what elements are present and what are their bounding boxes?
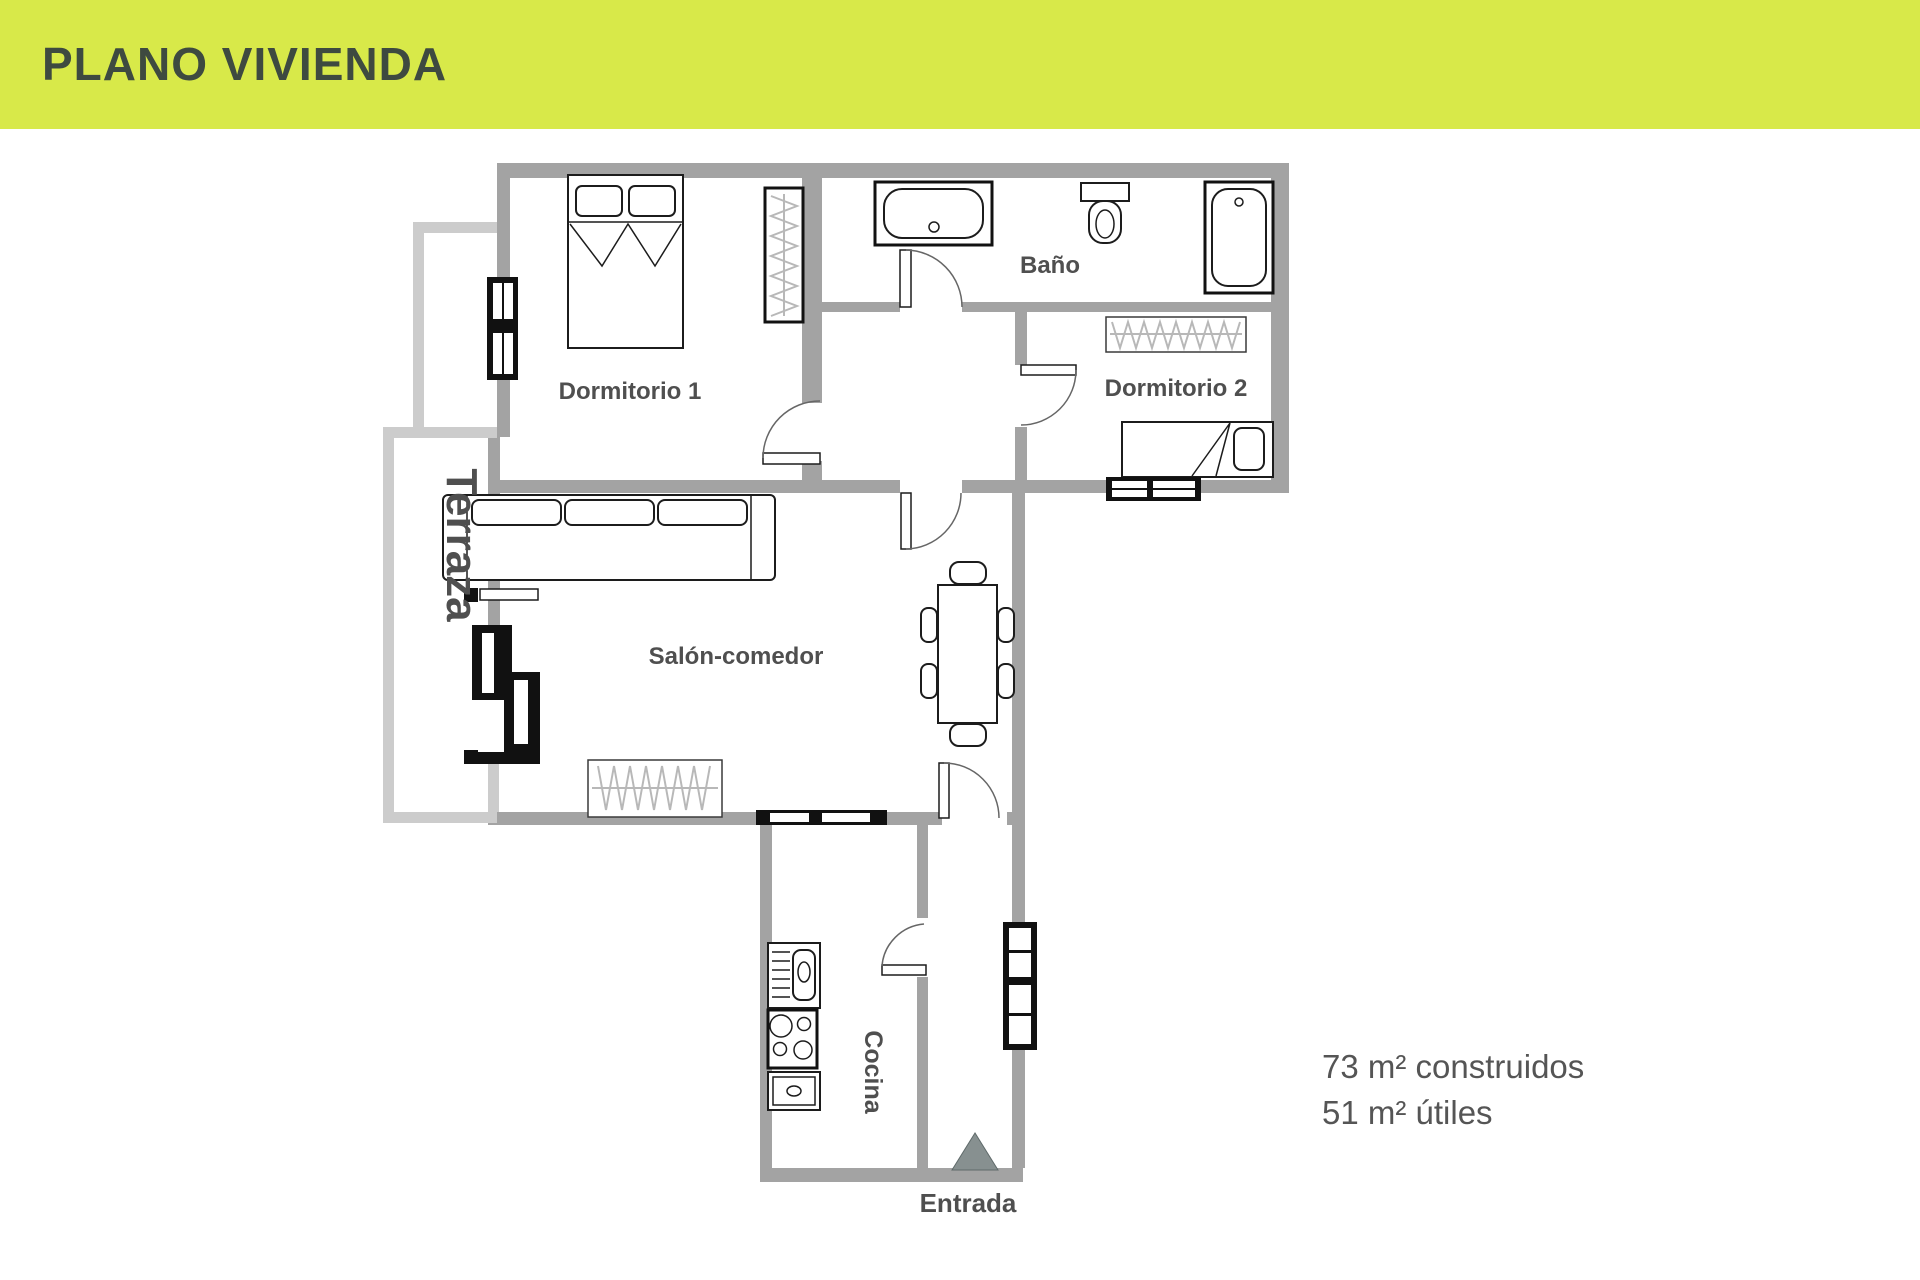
label-dormitorio1: Dormitorio 1 [559,378,702,405]
slider-panel-glass [482,633,494,693]
sink-basin [793,950,815,1000]
sofa-cushion [565,500,654,525]
room-labels: Dormitorio 1 Baño Dormitorio 2 Terraza S… [437,252,1247,1218]
wall-hall-east-lower [1015,427,1027,480]
oven-icon [768,1072,820,1110]
door-swing-arc [906,250,962,307]
door-leaf [901,493,911,549]
label-cocina: Cocina [859,1030,887,1114]
chair-icon [950,562,986,584]
terrace-wall-top [413,222,497,233]
closet-radiator-icon [765,188,803,322]
toilet-icon [1081,183,1129,243]
chair-icon [950,724,986,746]
toilet-tank [1081,183,1129,201]
entry-arrow-icon [952,1133,998,1170]
terrace-wall-left-lower [383,427,394,823]
door-leaf [882,965,926,975]
sofa-icon [443,495,775,580]
slider-leaf [480,589,538,600]
terrace-wall-salon-segment [488,764,499,812]
sink-icon [875,182,992,245]
area-constructed: 73 m² construidos [1322,1048,1584,1085]
slider-track [478,752,540,764]
page-title: PLANO VIVIENDA [42,38,447,90]
sofa-cushion [658,500,747,525]
chair-icon [998,664,1014,698]
bathtub-icon [1205,182,1273,293]
wall-salon-top-west [497,480,900,493]
window-mullion [1009,950,1031,953]
window-mullion [1009,1013,1031,1016]
radiator-icon [588,760,722,817]
door-swing-arc [1021,370,1076,425]
sink-basin [884,189,983,238]
radiator-icon [1106,317,1246,352]
table-top [938,585,997,723]
kitchen-appliances [768,943,820,1110]
label-dormitorio2: Dormitorio 2 [1105,375,1248,402]
window-mullion [1112,488,1147,490]
terrace-wall-left-upper [413,222,424,438]
wall-corridor-east [1012,493,1025,1168]
dormitorio1-furniture [568,175,803,348]
label-bano: Baño [1020,252,1080,279]
chair-icon [921,664,937,698]
door-leaf [1021,365,1076,375]
window-dorm2-icon [1106,477,1201,501]
stove-icon [768,1010,817,1068]
label-terraza: Terraza [437,468,486,622]
window-pane [770,813,809,822]
window-mullion [1153,488,1195,490]
label-entrada: Entrada [920,1188,1017,1218]
wall-kitchen-east-lower [917,977,928,1168]
window-frame [487,277,518,380]
door-dormitorio2 [1021,365,1076,425]
wall-bath-bottom-east [962,302,1289,312]
slider-jamb [464,750,478,764]
area-useful: 51 m² útiles [1322,1094,1493,1131]
chair-icon [998,608,1014,642]
door-swing-arc [944,763,999,818]
wall-dorm1-east [802,177,822,403]
door-leaf [939,763,949,818]
area-info: 73 m² construidos 51 m² útiles [1322,1048,1584,1131]
window-pane [493,333,502,374]
door-swing-arc [763,401,820,458]
window-dorm1-icon [487,277,518,380]
window-pane [504,283,513,319]
pillow-icon [1234,428,1264,470]
terrace-wall-bottom [383,812,497,823]
door-kitchen [882,924,926,975]
slider-panel-glass [514,680,528,744]
window-kitchen-icon [756,810,887,825]
bathtub-inner [1212,189,1266,286]
pillow-icon [576,186,622,216]
door-leaf [763,453,820,464]
wall-salon-bottom-east [1007,812,1025,825]
window-pane [493,283,502,319]
label-salon: Salón-comedor [649,643,824,670]
door-salon [901,493,961,549]
window-corridor-icon [1003,922,1037,1050]
wall-salon-bottom-mid [887,812,942,825]
door-dormitorio1 [763,401,820,464]
pillow-icon [629,186,675,216]
wall-hall-east-upper [1015,312,1027,365]
door-bathroom [900,250,962,307]
terrace-wall-mid [383,427,497,438]
header: PLANO VIVIENDA [0,0,1920,129]
toilet-bowl [1089,201,1121,243]
dining-table-icon [921,562,1014,746]
kitchen-sink-icon [768,943,820,1008]
window-pane [822,813,870,822]
chair-icon [921,608,937,642]
door-leaf [900,250,911,307]
window-pane [504,333,513,374]
stove-frame [768,1010,817,1068]
wall-kitchen-east-upper [917,825,928,918]
door-swing-arc [882,924,924,966]
floor-plan-page: PLANO VIVIENDA [0,0,1920,1280]
wall-bath-bottom-west [802,302,900,312]
door-salon-corridor [939,763,999,818]
door-swing-arc [906,493,961,549]
floor-plan-canvas: PLANO VIVIENDA [0,0,1920,1280]
